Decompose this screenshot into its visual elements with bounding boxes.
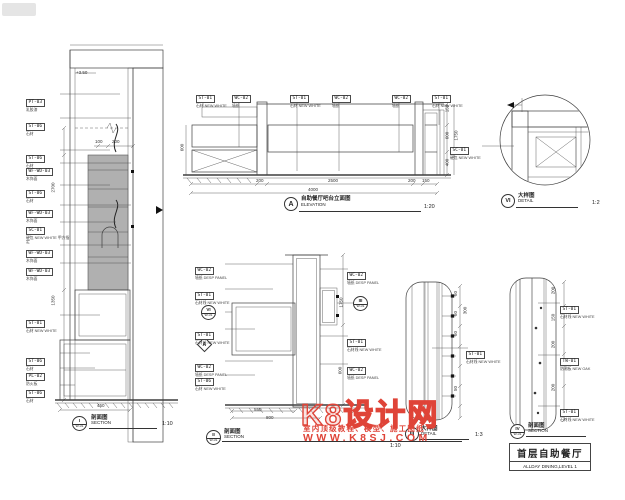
view-scale: 1:3 <box>475 432 483 438</box>
material-tag-code: ST-01 <box>432 95 451 103</box>
material-tag-code: SC-01 <box>26 227 45 235</box>
view-label-circle: VI <box>501 194 515 208</box>
material-tag: ST-01石材线 NEW WHITE <box>347 330 391 352</box>
view-title-en: SECTION <box>528 428 548 433</box>
material-tag-code: ST-01 <box>195 332 214 340</box>
material-tag-code: ST-06 <box>26 123 45 131</box>
label-underline <box>419 439 469 440</box>
view-label-circle: IV W-01 <box>510 424 525 439</box>
dim-value: 300 <box>462 307 467 315</box>
view-sheet: W-01 <box>75 425 83 428</box>
dim-value: 200 <box>550 384 555 392</box>
material-tag-code: WC-02 <box>332 95 351 103</box>
material-tag-note: 墙纸 <box>332 104 376 108</box>
detail-iii-linework <box>398 278 473 428</box>
material-tag-note: 石材 NEW WHITE <box>195 387 239 391</box>
material-tag-code: ST-06 <box>26 390 45 398</box>
view-label-circle: I W-01 <box>72 416 87 431</box>
panel-fill <box>88 155 128 290</box>
label-underline <box>516 207 578 208</box>
dim-value: 200 <box>408 178 416 183</box>
ground-hatch <box>187 178 251 183</box>
dim-value: 600 <box>337 367 342 375</box>
material-tag-note: 石材线 NEW WHITE <box>195 341 239 345</box>
material-tag: WC-02墙纸 DESP PANEL <box>195 258 239 280</box>
section-ii-linework <box>225 250 365 435</box>
view-scale: 1:10 <box>162 421 173 427</box>
left-section-linework <box>50 42 185 442</box>
material-tag: ST-01石材线 NEW WHITE <box>560 400 604 422</box>
ceiling-slab-hatch <box>70 50 163 68</box>
material-tag: SC-01硬包 NEW WHITE <box>450 138 494 160</box>
material-tag-note: 石材线 NEW WHITE <box>195 301 239 305</box>
detail-ref-circle: III W-01 <box>353 296 368 311</box>
material-tag: WF-WD-03木饰面 <box>26 159 70 181</box>
dim-value: 200 <box>256 178 264 183</box>
material-tag-note: 石材 <box>26 132 70 136</box>
material-tag: TW-01防潮板 NEW OAK <box>560 349 604 371</box>
material-tag: ST-06石材 NEW WHITE <box>195 369 239 391</box>
material-tag: ST-01石材线 NEW WHITE <box>560 297 604 319</box>
label-underline <box>222 441 462 442</box>
material-tag: ST-01石材 NEW WHITE <box>290 86 334 108</box>
detail-ref-circle: VI W-01 <box>201 305 216 320</box>
material-tag: ST-06石材 <box>26 381 70 403</box>
material-tag-note: 墙纸 DESP PANEL <box>195 276 239 280</box>
tag-leaders <box>538 303 560 406</box>
dim-value: 50 <box>453 311 458 316</box>
material-tag-code: ST-01 <box>466 351 485 359</box>
scan-artifact <box>2 3 36 16</box>
dim-value: 600 <box>179 144 184 152</box>
material-tag-code: WC-02 <box>347 272 366 280</box>
dim-value: 1750 <box>339 297 344 307</box>
material-tag-note: 石材线 NEW WHITE <box>466 360 510 364</box>
view-id: VI <box>505 198 510 204</box>
label-underline <box>526 436 586 437</box>
material-tag-code: PT-03 <box>26 99 45 107</box>
material-tag: ST-06石材 <box>26 181 70 203</box>
material-tag-note: 硬包 NEW WHITE <box>450 156 494 160</box>
material-tag: WC-02墙纸 DESP PANEL <box>347 358 391 380</box>
material-tag: WC-02墙纸 <box>332 86 376 108</box>
material-tag-code: ST-01 <box>195 292 214 300</box>
material-tag: ST-01石材 NEW WHITE <box>432 86 476 108</box>
pilaster-left <box>257 102 267 175</box>
material-tag-code: WC-02 <box>347 367 366 375</box>
sheet-title-cn: 首层自助餐厅 <box>510 444 590 462</box>
view-scale: 1:2 <box>592 200 600 206</box>
material-tag-code: PL-02 <box>26 373 45 381</box>
material-tag-note: 乳胶漆 <box>26 108 70 112</box>
dim-value: 200 <box>550 341 555 349</box>
material-tag-note: 墙纸 <box>392 104 436 108</box>
stone-band <box>268 125 413 152</box>
material-tag: WF-WD-03木饰面 <box>26 259 70 281</box>
drawing-sheet: PT-03乳胶漆 ST-06石材 ST-06石材 WF-WD-03木饰面 ST-… <box>0 0 625 500</box>
dim-value: 4000 <box>308 187 318 192</box>
material-tag-code: WF-WD-03 <box>26 250 53 258</box>
view-label-circle: III <box>405 427 419 441</box>
material-tag-code: ST-01 <box>347 339 366 347</box>
dim-value: 50 <box>453 386 458 391</box>
material-tag: ST-01石材线 NEW WHITE <box>195 323 239 345</box>
sheet-title-en: ALLDAY DINING,LEVEL 1 <box>510 462 590 470</box>
material-tag-code: ST-06 <box>195 378 214 386</box>
material-tag-note: 墙纸 DESP PANEL <box>347 376 391 380</box>
dim-value: 450 <box>97 403 105 408</box>
material-tag-note: 石材线 NEW WHITE <box>560 315 604 319</box>
label-underline <box>89 428 157 429</box>
material-tag-code: SC-01 <box>450 147 469 155</box>
detail-circle <box>500 95 590 185</box>
material-tag-note: 石材线 NEW WHITE <box>347 348 391 352</box>
dim-value: 200 <box>550 287 555 295</box>
material-tag-code: WC-02 <box>195 267 214 275</box>
view-scale: 1:20 <box>424 204 435 210</box>
material-tag-note: 石材 NEW WHITE <box>290 104 334 108</box>
view-title-en: SECTION <box>91 420 111 425</box>
material-tag-code: ST-06 <box>26 190 45 198</box>
material-tag-note: 石材 <box>26 399 70 403</box>
ground-hatch <box>229 408 353 413</box>
dim-value: 2500 <box>328 178 338 183</box>
material-tag-note: 防潮板 NEW OAK <box>560 367 604 371</box>
material-tag-code: WC-02 <box>232 95 251 103</box>
dim-value: 400 <box>444 159 449 167</box>
title-block: 首层自助餐厅 ALLDAY DINING,LEVEL 1 <box>509 443 591 471</box>
material-tag-code: TW-01 <box>560 358 579 366</box>
material-tag-code: ST-01 <box>26 320 45 328</box>
detail-ref-sheet: W-01 <box>356 305 364 308</box>
wall-hatch <box>133 68 163 442</box>
view-title-en: DETAIL <box>421 431 436 436</box>
material-tag-note: 墙纸 <box>232 104 276 108</box>
view-id: A <box>288 201 293 208</box>
material-tag: WC-02墙纸 <box>232 86 276 108</box>
view-title-cn: 自助餐厅吧台立面图 <box>301 194 351 202</box>
stone-band-end <box>425 125 437 152</box>
dim-value: 150 <box>550 314 555 322</box>
material-tag: ST-01石材线 NEW WHITE <box>466 342 510 364</box>
material-tag-code: WC-02 <box>392 95 411 103</box>
material-tag-note: 石材线 NEW WHITE <box>560 418 604 422</box>
pilaster-right <box>415 102 423 175</box>
material-tag-code: WF-WD-03 <box>26 268 53 276</box>
dim-value: 550 <box>254 407 262 412</box>
dim-value: 100 <box>95 139 103 144</box>
counter-hatch-block <box>192 125 257 147</box>
material-tag: WC-02墙纸 DESP PANEL <box>347 263 391 285</box>
view-label-circle: II W-01 <box>206 430 221 445</box>
section-cut-arrow <box>156 206 163 214</box>
material-tag: PT-03乳胶漆 <box>26 90 70 112</box>
material-tag-note: 石材 NEW WHITE <box>26 329 70 333</box>
wall-strip-outline <box>510 278 556 430</box>
counter-top-left <box>202 107 257 117</box>
wall-finish-strip <box>128 68 133 442</box>
joint-ticks <box>442 295 456 398</box>
view-title-en: SECTION <box>224 434 244 439</box>
wall-strip-outline <box>406 282 452 420</box>
material-tag-code: ST-01 <box>560 409 579 417</box>
material-tag-code: WF-WD-03 <box>26 210 53 218</box>
view-title-en: ELEVATION <box>301 202 326 207</box>
detail-ref-sheet: W-01 <box>204 314 212 317</box>
dim-value: 200 <box>112 139 120 144</box>
view-title-en: DETAIL <box>518 198 533 203</box>
dim-value: 1350 <box>51 295 56 305</box>
material-tag-code: ST-01 <box>196 95 215 103</box>
material-tag: WC-02墙纸 <box>392 86 436 108</box>
dim-value: 800 <box>266 415 274 420</box>
material-tag-code: WF-WD-03 <box>26 168 53 176</box>
view-sheet: W-01 <box>513 433 521 436</box>
label-underline <box>299 211 421 212</box>
view-id: III <box>410 431 415 437</box>
material-tag: ST-06石材 <box>26 114 70 136</box>
ground-hatch <box>57 403 173 408</box>
material-tag-code: ST-01 <box>290 95 309 103</box>
material-tag-note: 墙纸 DESP PANEL <box>347 281 391 285</box>
direction-arrow <box>507 102 514 108</box>
column-frame <box>293 255 320 407</box>
dim-value: 50 <box>453 291 458 296</box>
dim-value: 150 <box>422 178 430 183</box>
material-tag-note: 木饰面 <box>26 277 70 281</box>
dim-value: 50 <box>453 331 458 336</box>
view-label-circle: A <box>284 197 298 211</box>
dim-value: 600 <box>444 132 449 140</box>
view-scale: 1:10 <box>390 443 401 449</box>
level-mark: +3.50 <box>76 70 87 75</box>
material-tag-code: ST-01 <box>560 306 579 314</box>
material-tag: ST-01石材线 NEW WHITE <box>195 283 239 305</box>
material-tag-note: 石材 NEW WHITE <box>432 104 476 108</box>
view-sheet: W-01 <box>209 439 217 442</box>
material-tag: ST-01石材 NEW WHITE <box>26 311 70 333</box>
